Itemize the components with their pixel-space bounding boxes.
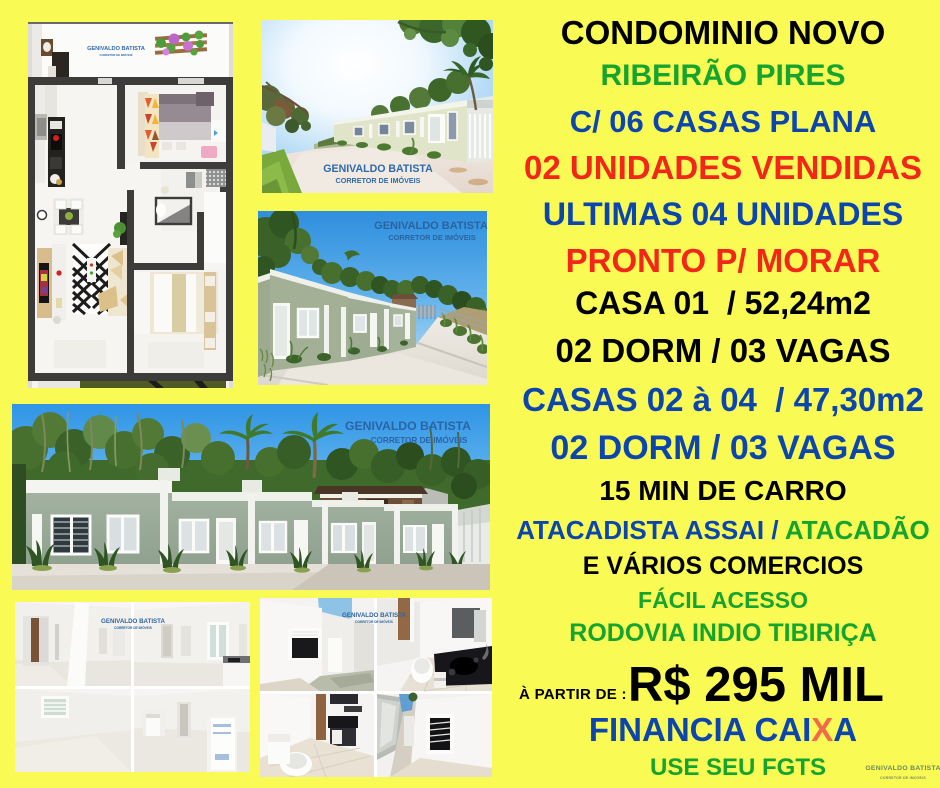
svg-text:GENIVALDO BATISTA: GENIVALDO BATISTA xyxy=(87,46,145,52)
svg-text:GENIVALDO BATISTA: GENIVALDO BATISTA xyxy=(323,163,433,175)
svg-text:CORRETOR DE IMÓVEIS: CORRETOR DE IMÓVEIS xyxy=(355,619,393,624)
svg-text:GENIVALDO BATISTA: GENIVALDO BATISTA xyxy=(374,220,487,232)
svg-text:CORRETOR DE IMÓVEIS: CORRETOR DE IMÓVEIS xyxy=(99,52,132,57)
svg-text:CORRETOR DE IMÓVEIS: CORRETOR DE IMÓVEIS xyxy=(114,625,152,630)
svg-text:CORRETOR DE IMÓVEIS: CORRETOR DE IMÓVEIS xyxy=(336,176,421,185)
svg-text:CORRETOR DE IMÓVEIS: CORRETOR DE IMÓVEIS xyxy=(371,434,468,445)
svg-text:GENIVALDO BATISTA: GENIVALDO BATISTA xyxy=(101,618,165,625)
svg-text:GENIVALDO BATISTA: GENIVALDO BATISTA xyxy=(345,419,471,433)
svg-text:CORRETOR DE IMÓVEIS: CORRETOR DE IMÓVEIS xyxy=(388,233,475,242)
svg-text:GENIVALDO BATISTA: GENIVALDO BATISTA xyxy=(342,612,406,619)
